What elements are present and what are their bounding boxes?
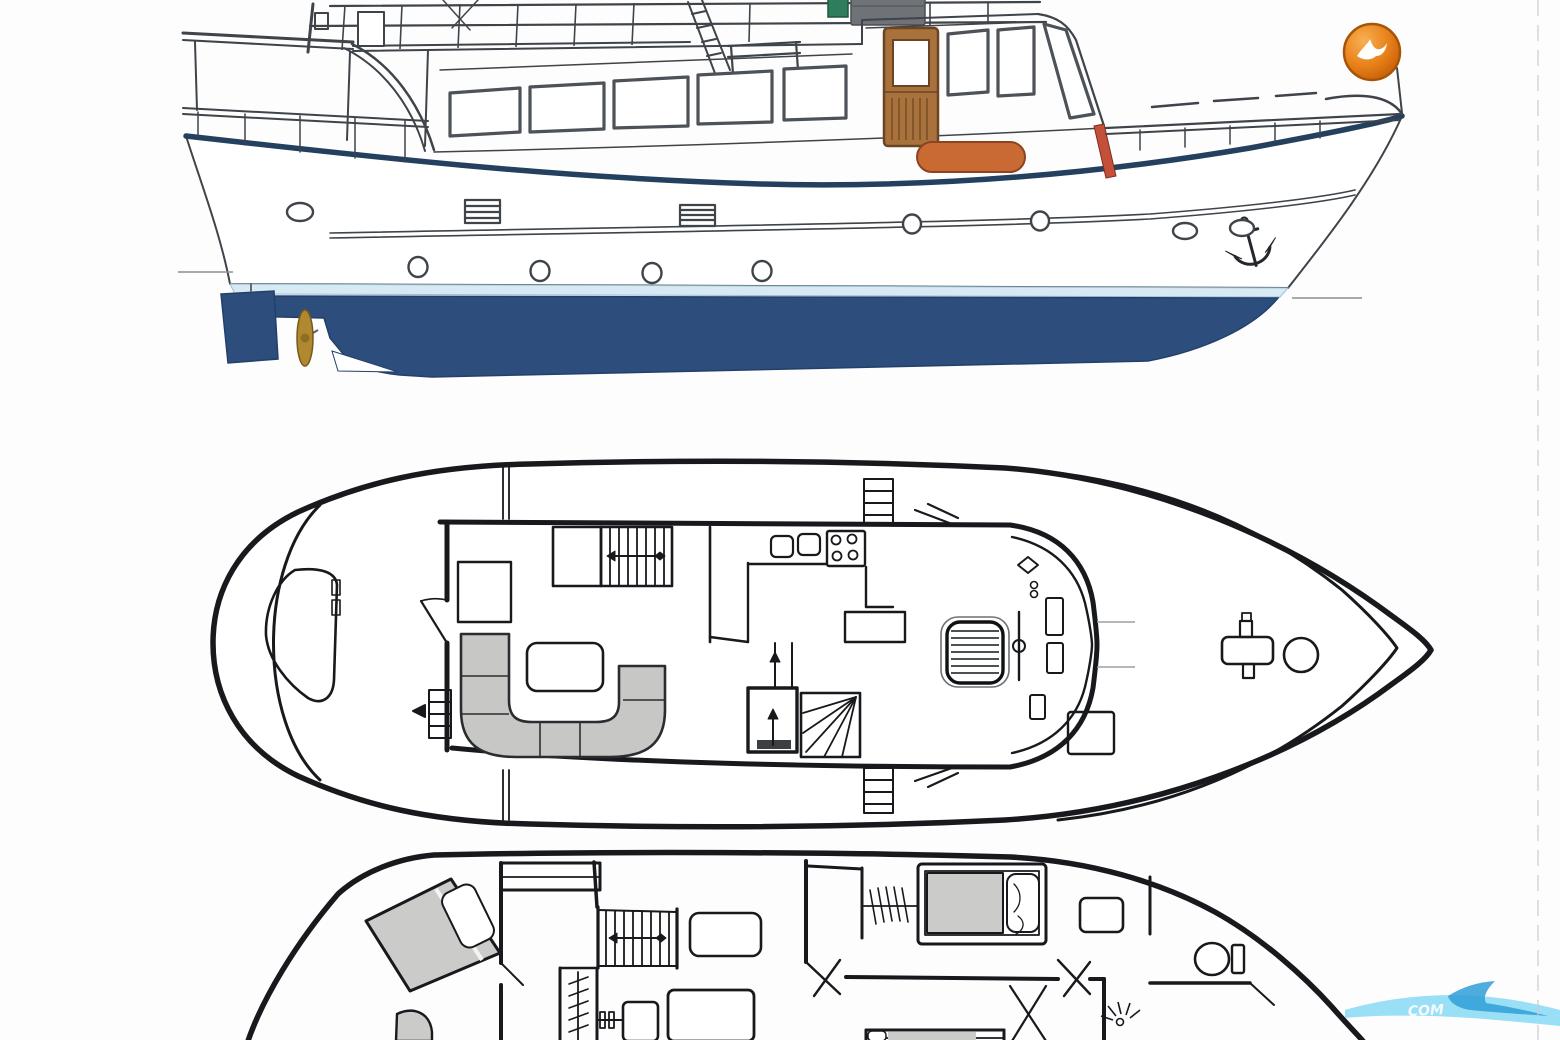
flybridge-green-box bbox=[828, 0, 848, 17]
lower-deck-plan-view bbox=[248, 853, 1363, 1040]
watermark: COM bbox=[1345, 981, 1560, 1026]
jackstaff bbox=[1397, 68, 1402, 113]
berth-mattress bbox=[927, 873, 1003, 933]
galley-sink bbox=[771, 536, 793, 557]
liferaft-canister bbox=[917, 142, 1025, 172]
gearbox bbox=[623, 1002, 658, 1040]
general-arrangement-drawing: COM bbox=[0, 0, 1560, 1040]
hanging-locker-aft bbox=[560, 968, 597, 1040]
saloon-table bbox=[527, 643, 603, 691]
galley-stove bbox=[827, 531, 865, 566]
hull-outline bbox=[213, 461, 1431, 827]
flybridge-locker bbox=[358, 12, 384, 46]
aft-cabin-seat bbox=[396, 1011, 432, 1040]
helm-seat bbox=[941, 617, 1009, 687]
rudder bbox=[221, 291, 278, 363]
aft-cabin-berth bbox=[366, 879, 500, 991]
yacht-drawing-page: COM bbox=[0, 0, 1560, 1040]
cabin-windows bbox=[450, 24, 1094, 136]
lower-table bbox=[690, 913, 761, 956]
nightstand bbox=[1080, 898, 1123, 932]
watermark-text: COM bbox=[1407, 1002, 1444, 1020]
light-symbol bbox=[1101, 1002, 1140, 1026]
lower-berth-partial bbox=[866, 1030, 1004, 1040]
hull-bottom bbox=[237, 296, 1278, 377]
wheelhouse-door bbox=[884, 28, 938, 146]
flybridge-ladder bbox=[688, 0, 730, 76]
main-deck-plan-view bbox=[213, 461, 1431, 827]
logo-badge bbox=[1344, 24, 1400, 80]
toilet-icon bbox=[1195, 943, 1229, 975]
forward-cabin bbox=[862, 864, 1123, 944]
engine-block bbox=[668, 990, 754, 1040]
engine-room bbox=[597, 990, 754, 1040]
stairs-lower bbox=[594, 862, 677, 968]
side-profile-view bbox=[178, 0, 1402, 377]
